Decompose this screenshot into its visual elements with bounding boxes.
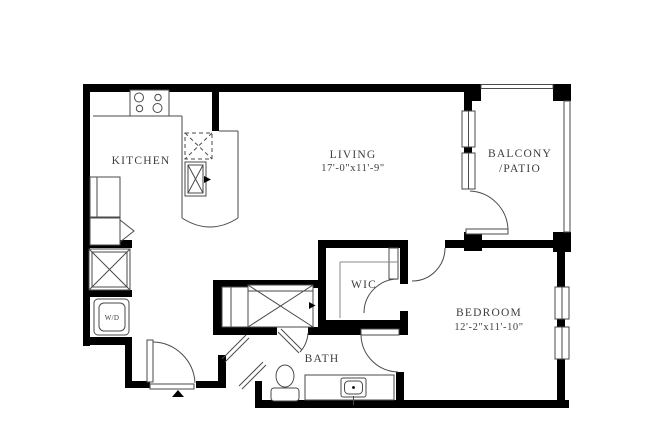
bedroom-door xyxy=(412,248,445,281)
closet-doors xyxy=(222,335,266,389)
kitchen-label: KITCHEN xyxy=(112,155,171,167)
vanity-sink-icon xyxy=(305,375,394,405)
stove-icon xyxy=(130,90,169,116)
living-label: LIVING xyxy=(330,149,377,161)
toilet-icon xyxy=(271,365,299,401)
living-dimensions: 17'-0"x11'-9" xyxy=(321,163,385,174)
overhead-cabinet-icon xyxy=(185,133,212,159)
utility-closet-icon xyxy=(89,249,130,290)
washer-dryer-icon: W/D xyxy=(94,299,129,335)
floor-plan-svg: W/D KITCHEN LIVING 17'-0"x11'-9" BALCONY… xyxy=(0,0,649,441)
laundry-label: W/D xyxy=(105,314,120,322)
linen-closet xyxy=(222,287,248,327)
bedroom-dimensions: 12'-2"x11'-10" xyxy=(454,322,523,333)
balcony-label-line1: BALCONY xyxy=(488,148,552,160)
refrigerator-icon xyxy=(185,162,211,196)
shower-icon xyxy=(248,285,316,327)
entry-door xyxy=(147,340,195,389)
entry-marker-icon xyxy=(172,390,184,397)
bath-label: BATH xyxy=(305,353,340,365)
floor-plan: W/D KITCHEN LIVING 17'-0"x11'-9" BALCONY… xyxy=(0,0,649,441)
pantry-cabinets xyxy=(90,177,134,245)
balcony-label-line2: /PATIO xyxy=(499,163,541,175)
bath-bedroom-door xyxy=(361,329,399,372)
bath-hall-door xyxy=(278,329,308,353)
wic-label: WIC xyxy=(351,279,377,291)
bedroom-label: BEDROOM xyxy=(456,307,522,319)
balcony-door xyxy=(466,191,508,234)
